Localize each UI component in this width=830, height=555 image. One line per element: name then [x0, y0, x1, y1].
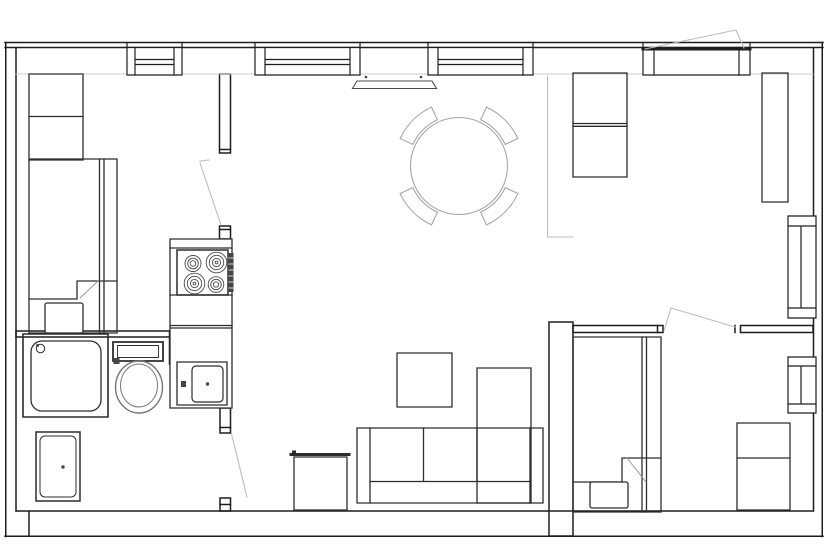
- bathroom-door-leaf: [232, 434, 248, 497]
- radiator: [353, 76, 437, 89]
- window-top-3: [428, 43, 533, 76]
- blanket-fold: [80, 281, 98, 298]
- washing-machine: [36, 432, 80, 501]
- window-right-1: [788, 216, 816, 318]
- toilet-bowl: [116, 361, 163, 413]
- tall-cabinet: [762, 73, 788, 202]
- faucet: [181, 381, 186, 387]
- wall-hall-upper: [220, 408, 231, 433]
- casement-window-swing: [645, 30, 744, 49]
- kitchen: [170, 239, 234, 408]
- bedroom-right-furniture: [573, 73, 790, 512]
- window-right-2: [788, 357, 816, 413]
- toilet: [113, 342, 163, 413]
- curtain-line: [548, 76, 574, 237]
- bedroom-door-swing: [664, 308, 735, 331]
- shower: [23, 334, 108, 417]
- outer-wall-top: [5, 43, 823, 48]
- kitchen-door-leaf: [200, 160, 221, 225]
- wall-bedroom-top-left: [573, 326, 663, 333]
- blanket-fold: [627, 458, 646, 482]
- wall-kitchen-upper: [220, 74, 231, 153]
- bedroom-door-jambs: [658, 326, 736, 333]
- chaise: [477, 368, 531, 503]
- nightstand: [737, 423, 790, 510]
- outer-wall-bottom: [5, 511, 823, 536]
- side-table: [291, 451, 349, 511]
- bed-right: [573, 337, 661, 512]
- living-dining: [291, 76, 543, 510]
- sofa: [357, 368, 543, 503]
- coffee-table: [397, 353, 452, 407]
- toilet-tank: [113, 342, 163, 361]
- outer-wall-left: [6, 43, 16, 537]
- wall-kitchen-mid: [220, 226, 231, 239]
- window-top-4-open-casement: [643, 43, 750, 76]
- pillow: [590, 482, 628, 508]
- wall-bedroom-top-right: [741, 326, 814, 333]
- stove-control-strip: [228, 253, 234, 292]
- floor-plan-svg: [0, 0, 830, 555]
- drain: [206, 382, 209, 385]
- dresser: [573, 73, 627, 177]
- dining-table: [411, 118, 508, 215]
- floor-plan-canvas: [0, 0, 830, 555]
- pillow: [45, 303, 83, 333]
- bedroom-left-furniture: [29, 74, 117, 333]
- wall-bedroom-left-column: [549, 322, 573, 536]
- dining-set: [400, 107, 518, 225]
- bathroom: [23, 334, 163, 501]
- walls: [5, 43, 823, 537]
- door-swings: [200, 30, 744, 497]
- window-top-2: [255, 43, 360, 76]
- window-top-1: [127, 43, 182, 76]
- bed-left: [29, 159, 117, 333]
- wardrobe: [29, 74, 83, 160]
